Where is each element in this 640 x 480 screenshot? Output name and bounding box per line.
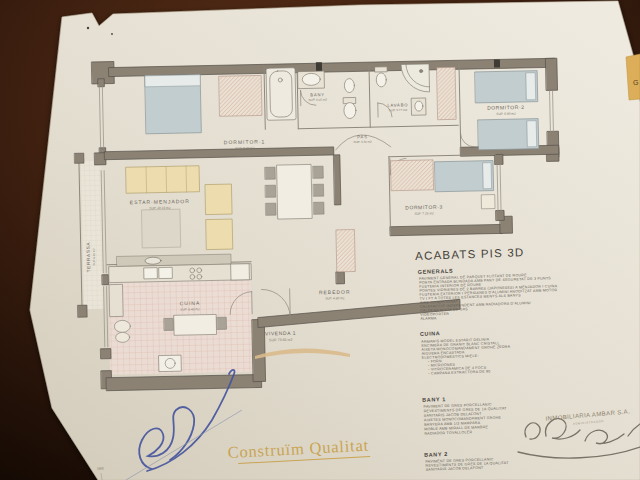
- chair-icon: [164, 318, 173, 330]
- svg-text:SUP. 7.25 m2: SUP. 7.25 m2: [414, 211, 434, 215]
- svg-text:SUP. 4.80 m2: SUP. 4.80 m2: [325, 296, 345, 300]
- paper-speck: [111, 33, 113, 35]
- dining-table-icon: [277, 164, 312, 219]
- yellow-tab-letter: G: [633, 79, 638, 86]
- armchair-icon: [205, 184, 232, 215]
- svg-text:SUP. 8.80 m2: SUP. 8.80 m2: [496, 112, 516, 116]
- bidet-icon: [344, 78, 354, 92]
- room-label-pas: PAS: [357, 134, 368, 139]
- washer-icon: [159, 355, 181, 371]
- photo-of-floorplan-document: G: [0, 0, 640, 480]
- toilet-icon: [375, 67, 387, 72]
- kitchen-sink-icon: [144, 268, 157, 279]
- chair-icon: [217, 317, 226, 329]
- room-label-bany: BANY: [310, 92, 325, 97]
- room-label-terrassa: TERRASSA: [86, 242, 92, 273]
- svg-text:SUP. 6.40 m2: SUP. 6.40 m2: [92, 248, 96, 266]
- plan-footer-mark: GER: [97, 467, 105, 471]
- column-icon: [494, 59, 500, 67]
- rug-icon: [142, 209, 181, 248]
- svg-text:SUP. 3.77 m2: SUP. 3.77 m2: [389, 108, 408, 112]
- svg-text:SUP. 4.05 m2: SUP. 4.05 m2: [308, 98, 327, 102]
- document-photo-canvas: G: [0, 0, 640, 480]
- room-label-dormitor2: DORMITOR-2: [487, 104, 525, 111]
- generals-heading: GENERALS: [418, 268, 454, 275]
- small-table-icon: [114, 320, 130, 332]
- hall-closet: [336, 229, 355, 271]
- svg-text:SUP. 8.40 m2: SUP. 8.40 m2: [180, 307, 200, 311]
- room-label-dormitor3: DORMITOR-3: [405, 204, 443, 211]
- kitchen-counter-icon: [109, 264, 251, 283]
- room-label-dormitor1: DORMITOR-1: [224, 138, 266, 145]
- room-label-estar: ESTAR-MENJADOR: [130, 198, 190, 205]
- tv-icon: [145, 257, 161, 264]
- room-label-cuina: CUINA: [180, 300, 201, 306]
- paper-speck: [87, 27, 89, 29]
- room-label-rebedor: REBEDOR: [319, 289, 351, 296]
- cuina-heading: CUINA: [420, 330, 441, 337]
- armchair-icon: [206, 219, 233, 250]
- svg-text:SUP. 4.30 m2: SUP. 4.30 m2: [353, 140, 372, 144]
- side-counter-icon: [110, 284, 124, 316]
- vivenda-label: VIVENDA 1: [265, 330, 296, 337]
- bany1-heading: BANY 1: [422, 396, 446, 403]
- svg-text:SUP. 9.30 m2: SUP. 9.30 m2: [235, 146, 255, 150]
- svg-text:SUP. 20.15 m2: SUP. 20.15 m2: [149, 206, 171, 210]
- svg-text:ALARMA: ALARMA: [420, 316, 437, 321]
- bany2-heading: BANY 2: [424, 451, 448, 458]
- sofa-icon: [126, 166, 200, 194]
- column-icon: [316, 62, 322, 71]
- fridge-icon: [231, 264, 249, 280]
- kitchen-table-icon: [174, 314, 216, 335]
- svg-text:SUP. 73.50 m2: SUP. 73.50 m2: [269, 338, 292, 342]
- nightstand-icon: [482, 195, 495, 209]
